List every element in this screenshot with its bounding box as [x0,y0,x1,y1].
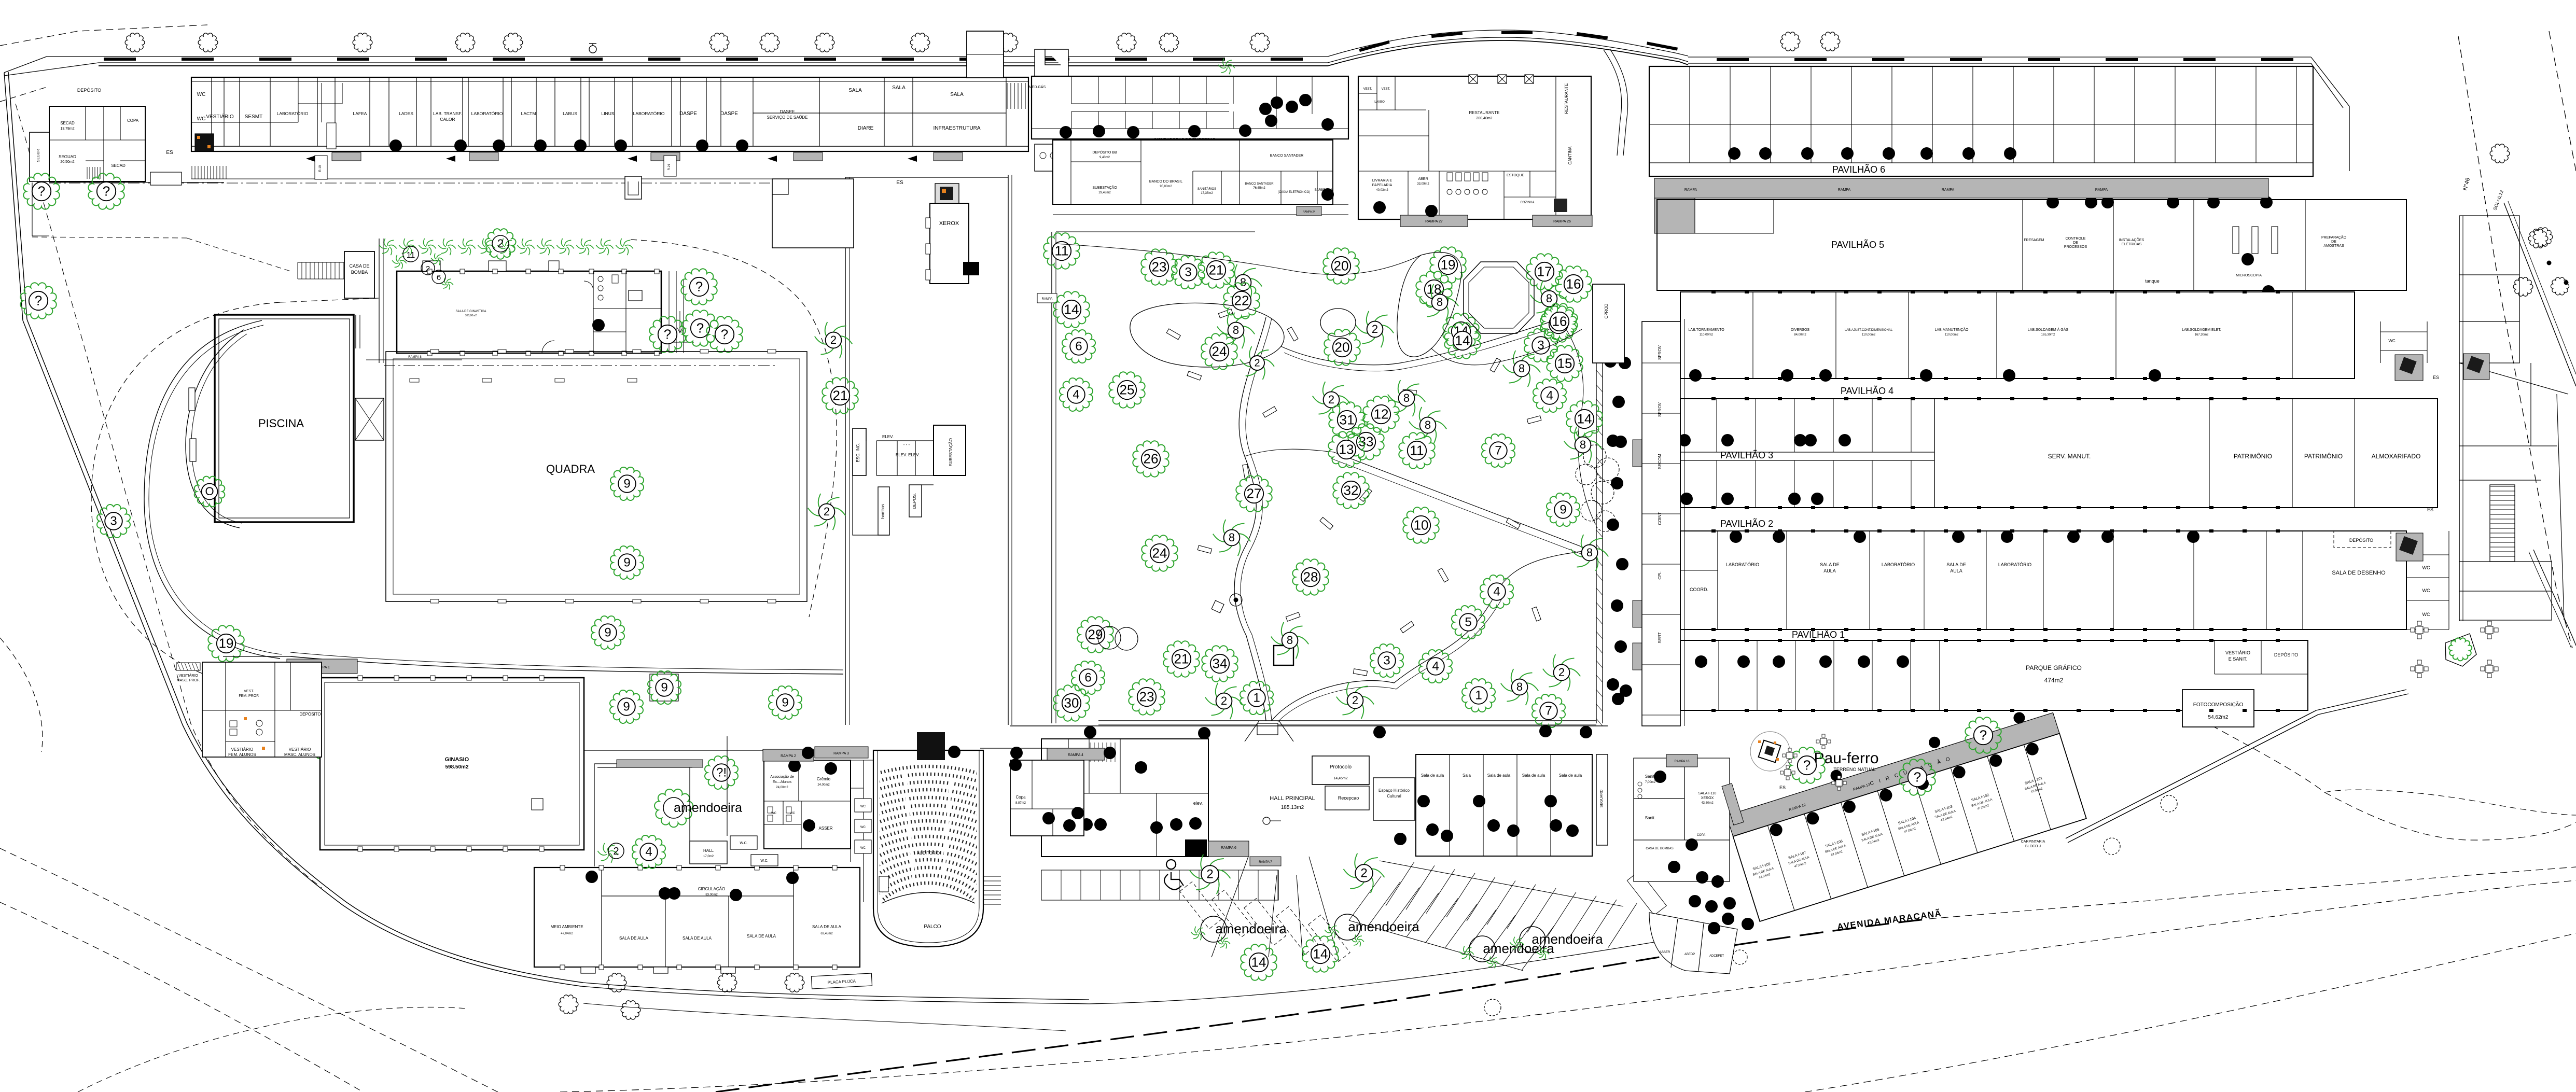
svg-text:14: 14 [1064,301,1079,317]
svg-text:VESTIÁRIO: VESTIÁRIO [231,747,254,752]
svg-text:MASC. ALUNOS: MASC. ALUNOS [284,752,315,757]
svg-text:LAB.SOLDAGEM ELET.: LAB.SOLDAGEM ELET. [2182,328,2221,332]
svg-text:6: 6 [437,273,441,282]
svg-text:COINT: COINT [1658,512,1662,525]
svg-text:FRESAGEM: FRESAGEM [2024,239,2044,242]
svg-text:SEGUR: SEGUR [37,149,40,162]
svg-text:9: 9 [623,477,630,491]
svg-text:19: 19 [219,635,234,651]
svg-text:ELEV. ELEV.: ELEV. ELEV. [896,453,920,457]
svg-text:34: 34 [1213,655,1228,671]
svg-text:COPA: COPA [1697,834,1706,837]
svg-text:SPROV: SPROV [1658,345,1662,360]
svg-text:WC: WC [771,812,777,815]
svg-text:LABORATÓRIO: LABORATÓRIO [633,111,665,116]
svg-text:LABORATÓRIO: LABORATÓRIO [1726,562,1759,567]
svg-text:SALA DE AULA: SALA DE AULA [619,936,649,941]
svg-text:WC: WC [860,826,866,829]
svg-text:amendoeira: amendoeira [674,801,742,815]
svg-text:21: 21 [833,387,848,403]
svg-text:2: 2 [1372,323,1378,335]
svg-text:110,00m2: 110,00m2 [1945,333,1959,337]
svg-text:RAMPA 16: RAMPA 16 [1675,760,1690,763]
svg-text:SALA DE: SALA DE [1946,562,1966,567]
svg-text:?: ? [697,320,704,335]
svg-text:20: 20 [1334,258,1349,273]
svg-text:RAMPA 3: RAMPA 3 [833,752,849,755]
svg-text:WC: WC [197,116,206,122]
svg-text:DEPOS.: DEPOS. [912,493,917,509]
svg-text:?: ? [35,292,42,308]
svg-text:SALA DE GINASTICA: SALA DE GINASTICA [455,310,486,313]
svg-text:110,00m2: 110,00m2 [1862,333,1876,337]
svg-text:11: 11 [407,251,415,260]
svg-text:CPL: CPL [1658,571,1662,580]
svg-text:2: 2 [830,333,837,346]
svg-text:SUBESTAÇÃO: SUBESTAÇÃO [949,438,953,466]
svg-text:8: 8 [1546,292,1552,305]
svg-text:RAMPA 7: RAMPA 7 [1259,861,1272,864]
svg-text:LIVRARIA E: LIVRARIA E [1372,179,1392,183]
svg-text:SALA I-110: SALA I-110 [1698,792,1717,795]
svg-text:SALA: SALA [950,92,964,97]
svg-text:9: 9 [661,681,667,695]
svg-text:PAVILHÃO 2: PAVILHÃO 2 [1720,518,1773,529]
svg-text:ES: ES [166,150,173,156]
svg-text:?: ? [1914,769,1921,785]
svg-text:DEPÓSITO BB: DEPÓSITO BB [1092,150,1117,155]
svg-text:SUBESTAÇÃO: SUBESTAÇÃO [1092,185,1117,190]
svg-text:VESTIÁRIO: VESTIÁRIO [2225,650,2250,655]
svg-text:E SANIT.: E SANIT. [2229,656,2248,662]
svg-text:40,03m2: 40,03m2 [1376,189,1388,192]
svg-text:165,30m2: 165,30m2 [2041,333,2055,337]
svg-text:167,30m2: 167,30m2 [2195,333,2209,337]
svg-text:FEM. ALUNOS: FEM. ALUNOS [228,752,256,757]
svg-text:LABORATÓRIO: LABORATÓRIO [1998,562,2031,567]
svg-text:SEGUAD: SEGUAD [59,155,76,159]
svg-text:BOMBA: BOMBA [351,270,368,275]
svg-text:BANCO SANTADER: BANCO SANTADER [1245,183,1274,186]
svg-text:20: 20 [1335,339,1350,355]
svg-text:ELEV.: ELEV. [882,435,894,439]
svg-text:12: 12 [1374,406,1389,422]
svg-text:TERRENO NATUAL: TERRENO NATUAL [1833,767,1875,772]
svg-text:14: 14 [1455,332,1470,348]
svg-text:2: 2 [1206,867,1213,881]
svg-text:110,00m2: 110,00m2 [1700,333,1714,337]
svg-text:HALL: HALL [703,848,714,853]
svg-text:RESTAURANTE: RESTAURANTE [1564,83,1569,114]
svg-text:24,00m2: 24,00m2 [817,783,830,787]
svg-text:RAMPA 24: RAMPA 24 [1303,211,1315,214]
svg-text:RAMPA 6: RAMPA 6 [1221,846,1236,850]
svg-text:LAB.SOLDAGEM À GÁS: LAB.SOLDAGEM À GÁS [2028,327,2069,332]
svg-text:SALA DE AULA: SALA DE AULA [812,925,842,929]
svg-text:COZINHA: COZINHA [1521,201,1535,204]
svg-text:SALA: SALA [892,85,906,91]
svg-text:5: 5 [1465,615,1471,629]
svg-text:SALA DE AULA: SALA DE AULA [683,936,712,941]
svg-text:SECAD: SECAD [60,121,75,125]
svg-text:RAMPA: RAMPA [1942,188,1955,192]
svg-text:47,04m2: 47,04m2 [561,932,573,935]
svg-text:13: 13 [1339,441,1354,457]
svg-text:VESTIÁRIO: VESTIÁRIO [289,747,311,752]
svg-text:4: 4 [1546,389,1553,403]
svg-text:ELÉTRICAS: ELÉTRICAS [2122,242,2142,246]
svg-text:PAPELARIA: PAPELARIA [1372,184,1393,187]
svg-text:DEPÓSITO: DEPÓSITO [2349,538,2373,543]
svg-text:7: 7 [1545,704,1552,718]
svg-text:PATRIMÔNIO: PATRIMÔNIO [2304,452,2343,460]
svg-text:CIRCULAÇÃO: CIRCULAÇÃO [698,887,725,891]
svg-text:LAFEA: LAFEA [353,111,367,116]
svg-text:DASPE: DASPE [679,111,697,117]
svg-text:33,09m2: 33,09m2 [1417,183,1429,186]
svg-text:54,62m2: 54,62m2 [2208,715,2229,720]
svg-text:ES: ES [2427,507,2433,512]
svg-text:Associação de: Associação de [770,775,794,779]
svg-text:43,60m2: 43,60m2 [1701,802,1714,805]
svg-text:COPA: COPA [127,118,139,123]
svg-text:2: 2 [1352,694,1358,707]
svg-text:VESTIÁRIO: VESTIÁRIO [206,113,234,120]
svg-text:17,35m2: 17,35m2 [1201,192,1213,195]
svg-text:XEROX: XEROX [1701,796,1714,800]
svg-text:INSTALAÇÕES: INSTALAÇÕES [2119,237,2145,242]
svg-text:27: 27 [1247,485,1262,501]
svg-text:ADCEFET: ADCEFET [1709,955,1724,958]
svg-text:Protocolo: Protocolo [1330,764,1352,770]
svg-text:PALCO: PALCO [924,924,941,930]
svg-text:Sala: Sala [1463,773,1471,778]
svg-text:LABUS: LABUS [563,111,577,116]
svg-text:W.C.: W.C. [760,859,768,863]
svg-text:DIARE: DIARE [858,125,874,131]
svg-text:Recepcao: Recepcao [1338,795,1359,801]
svg-text:LADES: LADES [399,111,413,116]
svg-text:Copa: Copa [1015,795,1026,800]
svg-text:RAMPA 2: RAMPA 2 [781,754,796,758]
svg-text:2: 2 [1328,393,1334,406]
svg-text:VESTIÁRIO: VESTIÁRIO [178,673,198,678]
svg-text:LAB.MANUTENÇÃO: LAB.MANUTENÇÃO [1935,327,1969,332]
svg-text:BANCO DO BRASIL: BANCO DO BRASIL [1149,180,1182,184]
svg-text:AMOSTRAS: AMOSTRAS [2323,244,2344,248]
svg-text:?!: ?! [716,766,727,780]
svg-text:Cultural: Cultural [1387,794,1401,799]
svg-text:8: 8 [1425,418,1431,431]
svg-text:PROCESSOS: PROCESSOS [2064,245,2087,249]
svg-text:Espaço Histórico: Espaço Histórico [1378,788,1410,793]
svg-text:SEGUARD: SEGUARD [1600,790,1604,808]
svg-text:Sala de aula: Sala de aula [1487,773,1511,778]
svg-text:14: 14 [1251,954,1266,970]
svg-text:WC: WC [2422,588,2430,593]
svg-text:RAMPA 27: RAMPA 27 [1425,220,1443,223]
svg-text:AULA: AULA [1950,568,1962,573]
svg-text:INFRAESTRUTURA: INFRAESTRUTURA [933,125,980,131]
svg-text:3: 3 [1185,265,1191,279]
svg-text:BANCO SANTADER: BANCO SANTADER [1270,154,1303,158]
svg-text:4: 4 [1493,585,1500,599]
svg-text:MICROSCOPIA: MICROSCOPIA [2236,274,2262,277]
svg-text:6: 6 [1084,671,1091,685]
svg-text:AUDITORIO: AUDITORIO [917,851,940,856]
svg-text:31: 31 [1340,412,1355,427]
svg-text:83,00m2: 83,00m2 [705,893,718,897]
svg-text:LAB.TORNEAMENTO: LAB.TORNEAMENTO [1688,328,1724,332]
svg-text:COORD.: COORD. [1690,587,1708,592]
svg-text:R.21: R.21 [668,163,671,170]
svg-text:4: 4 [1432,660,1439,674]
svg-text:PAVILHÃO 3: PAVILHÃO 3 [1720,450,1773,460]
svg-text:tanque: tanque [2145,278,2160,284]
svg-text:?: ? [1803,757,1811,773]
svg-text:8,87m2: 8,87m2 [1015,802,1026,805]
svg-text:ASSER: ASSER [818,826,832,831]
svg-text:PAVILHÃO 1: PAVILHÃO 1 [1792,629,1845,640]
svg-text:DE: DE [2073,241,2078,245]
svg-text:SECOM: SECOM [1658,454,1662,469]
svg-text:25: 25 [1120,382,1135,397]
svg-text:14: 14 [1313,946,1328,961]
svg-text:24,00m2: 24,00m2 [776,786,788,789]
svg-text:9: 9 [604,626,611,640]
svg-text:32: 32 [1344,482,1359,498]
svg-text:SANITÁRIOS: SANITÁRIOS [1198,187,1216,191]
svg-text:20.50m2: 20.50m2 [60,160,74,164]
svg-text:SALA: SALA [848,88,862,93]
svg-text:amendoeira: amendoeira [1215,921,1287,936]
svg-text:185.13m2: 185.13m2 [1281,805,1304,810]
svg-text:RAMPA: RAMPA [1838,188,1851,192]
svg-text:13.78m2: 13.78m2 [60,127,74,131]
svg-text:PISCINA: PISCINA [258,417,304,430]
svg-text:Sala de aula: Sala de aula [1522,773,1545,778]
svg-text:LAB.AJUST.CONT.DIMENSIONAL: LAB.AJUST.CONT.DIMENSIONAL [1845,329,1893,332]
svg-text:SALA DE: SALA DE [1820,562,1840,567]
svg-text:2: 2 [1221,694,1227,707]
svg-text:WC: WC [860,847,866,850]
svg-text:CARPINTARIA: CARPINTARIA [2021,840,2045,844]
svg-text:FEM. PROF.: FEM. PROF. [239,694,259,698]
svg-text:MASC. PROF.: MASC. PROF. [177,679,200,682]
svg-text:LABORATÓRIO: LABORATÓRIO [471,111,503,116]
svg-text:ABER: ABER [1418,177,1428,181]
svg-text:LABORATÓRIO: LABORATÓRIO [277,111,309,116]
svg-text:9: 9 [782,696,788,710]
svg-text:HALL PRINCIPAL: HALL PRINCIPAL [1270,795,1315,802]
svg-text:63,45m2: 63,45m2 [820,932,833,935]
svg-text:?: ? [721,326,728,342]
svg-text:8: 8 [1233,324,1239,337]
svg-text:15: 15 [1557,355,1572,371]
svg-text:R.19: R.19 [319,165,322,172]
svg-text:WC: WC [790,812,796,815]
svg-text:PAVILHÃO 4: PAVILHÃO 4 [1841,385,1893,396]
svg-text:VEST.: VEST. [1382,88,1390,91]
svg-text:MED.GÁS: MED.GÁS [1029,85,1046,89]
svg-text:WC: WC [2422,612,2430,617]
svg-text:21: 21 [1209,262,1224,277]
svg-text:ES: ES [1779,785,1786,790]
svg-text:16: 16 [1566,276,1581,291]
svg-text:SERT: SERT [1658,632,1662,643]
svg-text:RESTAURANTE: RESTAURANTE [1469,110,1500,115]
svg-text:28: 28 [1303,569,1318,584]
svg-text:Sala de aula: Sala de aula [1421,773,1444,778]
svg-text:RAMPA 26: RAMPA 26 [1553,220,1571,223]
svg-text:8: 8 [1403,391,1410,404]
svg-text:7,00m2: 7,00m2 [1645,781,1656,784]
svg-text:14,45m2: 14,45m2 [1333,777,1347,780]
svg-text:9: 9 [623,556,630,570]
svg-text:11: 11 [1410,442,1424,458]
svg-text:WC: WC [2422,565,2430,570]
svg-text:8: 8 [1229,531,1235,544]
svg-text:2: 2 [497,237,504,250]
svg-text:DEPÓSITO: DEPÓSITO [77,88,101,93]
svg-text:SALA DE DESENHO: SALA DE DESENHO [2332,570,2386,576]
svg-text:QUADRA: QUADRA [546,463,595,475]
svg-text:95,00m2: 95,00m2 [1160,185,1172,188]
svg-text:DEPÓSITO: DEPÓSITO [299,712,321,717]
svg-text:WC: WC [860,805,866,808]
svg-text:bombas: bombas [881,504,885,519]
svg-text:AULA: AULA [1823,568,1836,573]
svg-text:PREPARAÇÃO: PREPARAÇÃO [2321,235,2347,240]
svg-text:?: ? [695,278,703,294]
svg-text:GINASIO: GINASIO [445,757,469,763]
svg-text:76,65m2: 76,65m2 [1253,187,1265,190]
svg-text:FOTOCOMPOSIÇÃO: FOTOCOMPOSIÇÃO [2193,701,2244,708]
svg-text:2: 2 [824,505,830,518]
svg-text:29: 29 [1088,626,1103,642]
svg-text:21: 21 [1174,651,1189,666]
svg-text:29,48m2: 29,48m2 [1098,191,1111,194]
svg-text:?: ? [664,326,671,342]
svg-text:LAB. TRANSF.: LAB. TRANSF. [433,111,462,116]
svg-text:PAVILHÃO 6: PAVILHÃO 6 [1832,164,1885,175]
svg-text:?: ? [103,183,110,199]
svg-text:CALOR: CALOR [440,117,455,122]
svg-text:6: 6 [1075,340,1082,354]
svg-text:DASPE: DASPE [720,111,738,117]
svg-text:ALMOXARIFADO: ALMOXARIFADO [2372,453,2421,460]
svg-text:SERV. MANUT.: SERV. MANUT. [2048,453,2091,460]
svg-text:ESC. INC.: ESC. INC. [856,443,860,463]
svg-text:2: 2 [1360,866,1367,880]
svg-text:Ex—Alunos: Ex—Alunos [773,780,792,784]
svg-text:PAVILHÃO 5: PAVILHÃO 5 [1831,239,1884,250]
svg-text:?: ? [38,183,45,199]
svg-text:1: 1 [1253,691,1260,705]
svg-text:8: 8 [1516,680,1523,693]
svg-text:PARQUE GRÁFICO: PARQUE GRÁFICO [2026,664,2082,671]
svg-text:350,00m2: 350,00m2 [465,314,477,317]
svg-text:11: 11 [1055,243,1069,258]
svg-text:ES: ES [2433,375,2439,380]
svg-text:RAMPA: RAMPA [1684,188,1697,192]
svg-text:2: 2 [1254,357,1260,369]
svg-text:DEPÓSITO: DEPÓSITO [2274,652,2298,657]
svg-text:16: 16 [1552,313,1567,329]
svg-text:30: 30 [1064,695,1079,710]
svg-text:elev.: elev. [1193,801,1203,806]
svg-text:- - -: - - - [903,442,910,447]
svg-text:17,0m2: 17,0m2 [703,855,714,858]
svg-text:CANTINA: CANTINA [1568,146,1572,165]
svg-text:9,43m2: 9,43m2 [1099,156,1110,159]
svg-text:VEST.: VEST. [244,690,254,693]
svg-text:200,40m2: 200,40m2 [1476,117,1492,120]
svg-text:474m2: 474m2 [2044,677,2064,684]
svg-text:DE: DE [2331,240,2336,244]
svg-text:LACTM: LACTM [521,111,536,116]
svg-text:8: 8 [1580,438,1586,451]
svg-text:24: 24 [1212,343,1227,359]
svg-text:RAMPA: RAMPA [2095,188,2108,192]
svg-text:BLOCO J: BLOCO J [2025,845,2041,848]
svg-text:ASSER: ASSER [1660,951,1670,954]
svg-text:84,00m2: 84,00m2 [1794,333,1806,337]
svg-text:598.50m2: 598.50m2 [445,764,468,770]
svg-text:SECAD: SECAD [111,163,126,168]
svg-text:ESTOQUE: ESTOQUE [1507,174,1524,177]
svg-text:XEROX: XEROX [939,220,959,227]
svg-text:9: 9 [623,700,630,714]
svg-text:LAVBO: LAVBO [1374,101,1385,104]
svg-text:RAMPA 8: RAMPA 8 [408,356,422,359]
svg-text:RAMPA 4: RAMPA 4 [1068,753,1083,757]
svg-text:3: 3 [110,514,117,528]
svg-text:CASA DE: CASA DE [349,263,369,269]
svg-text:7: 7 [1495,444,1501,458]
svg-text:9: 9 [1559,503,1566,517]
svg-text:LABORATÓRIO: LABORATÓRIO [1882,562,1915,567]
svg-text:SERVIÇO DE SAÚDE: SERVIÇO DE SAÚDE [767,115,808,120]
svg-text:CPROD: CPROD [1604,303,1609,318]
svg-text:Sanit.: Sanit. [1645,816,1655,820]
svg-text:4: 4 [1073,388,1079,402]
svg-text:RAMPA: RAMPA [1042,298,1053,301]
svg-text:SALA DE AULA: SALA DE AULA [747,934,776,939]
svg-text:?: ? [1980,727,1987,743]
svg-text:Sala de aula: Sala de aula [1559,773,1582,778]
svg-text:ES: ES [896,180,903,186]
svg-text:4: 4 [645,845,652,859]
svg-text:2: 2 [613,846,619,857]
svg-text:8: 8 [1287,634,1293,647]
svg-text:10: 10 [1414,517,1429,533]
svg-text:WC: WC [197,92,206,97]
svg-text:SPROV: SPROV [1658,402,1662,417]
svg-text:amendoeira: amendoeira [1348,919,1419,934]
svg-text:17: 17 [1537,263,1552,279]
svg-text:DIVERSOS: DIVERSOS [1791,328,1810,332]
svg-text:(CAIXA ELETRÔNICO): (CAIXA ELETRÔNICO) [1278,190,1310,194]
svg-text:W.C.: W.C. [740,842,747,845]
svg-text:WC: WC [2388,339,2396,343]
svg-text:Grêmio: Grêmio [817,777,831,781]
svg-text:VEST.: VEST. [1363,88,1372,91]
svg-text:8: 8 [1586,546,1593,559]
svg-text:2: 2 [426,264,430,273]
svg-text:3: 3 [1383,654,1390,668]
svg-text:amendoeira: amendoeira [1531,931,1603,947]
